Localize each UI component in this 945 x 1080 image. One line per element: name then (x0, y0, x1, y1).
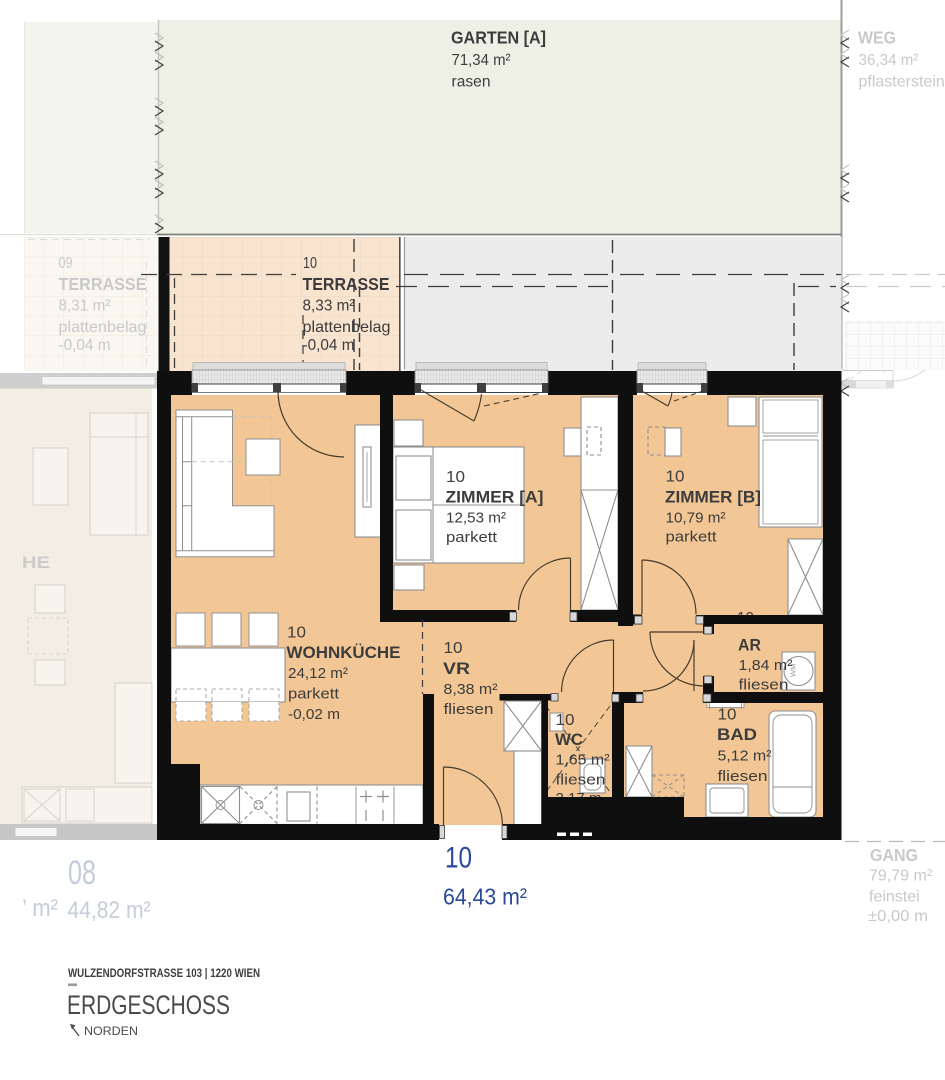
svg-text:-0,02 m: -0,02 m (288, 706, 340, 723)
svg-text:±0,00 m: ±0,00 m (868, 908, 928, 925)
svg-text:10: 10 (303, 255, 317, 272)
svg-text:HE: HE (22, 553, 50, 572)
svg-text:10: 10 (718, 707, 737, 724)
svg-text:12,53 m²: 12,53 m² (446, 509, 506, 526)
svg-text:09: 09 (59, 255, 73, 272)
svg-text:TERRASSE: TERRASSE (303, 274, 390, 294)
svg-text:10: 10 (287, 625, 306, 642)
svg-text:08: 08 (68, 854, 96, 892)
svg-text:-0,04 m: -0,04 m (59, 337, 111, 354)
svg-text:fliesen: fliesen (718, 768, 768, 785)
svg-text:GANG: GANG (870, 845, 918, 865)
svg-text:10: 10 (556, 712, 575, 729)
svg-text:NORDEN: NORDEN (84, 1024, 138, 1038)
svg-text:’ m²: ’ m² (22, 895, 58, 922)
svg-text:44,82 m²: 44,82 m² (68, 897, 151, 924)
svg-text:plattenbelag: plattenbelag (59, 319, 147, 336)
svg-text:10: 10 (444, 640, 463, 657)
svg-text:GARTEN [A]: GARTEN [A] (451, 28, 546, 48)
svg-text:fliesen: fliesen (739, 677, 789, 694)
svg-text:8,31 m²: 8,31 m² (59, 298, 112, 315)
svg-text:fliesen: fliesen (444, 701, 494, 718)
svg-text:24,12 m²: 24,12 m² (288, 665, 348, 682)
svg-text:79,79 m²: 79,79 m² (869, 868, 933, 885)
svg-text:8,33 m²: 8,33 m² (303, 298, 356, 315)
svg-text:1,84 m²: 1,84 m² (739, 657, 793, 674)
svg-text:5,12 m²: 5,12 m² (718, 748, 772, 765)
svg-text:1,65 m²: 1,65 m² (556, 752, 610, 769)
svg-text:parkett: parkett (666, 529, 718, 546)
svg-text:ERDGESCHOSS: ERDGESCHOSS (67, 990, 230, 1020)
svg-text:BAD: BAD (717, 725, 757, 744)
svg-text:WC: WC (555, 730, 583, 749)
svg-text:10: 10 (446, 469, 465, 486)
svg-text:plattenbelag: plattenbelag (303, 319, 391, 336)
svg-text:36,34 m²: 36,34 m² (859, 52, 920, 69)
svg-text:VR: VR (443, 659, 470, 678)
svg-text:rasen: rasen (452, 74, 491, 91)
svg-text:10: 10 (445, 842, 472, 875)
svg-text:parkett: parkett (288, 686, 340, 703)
svg-text:64,43 m²: 64,43 m² (443, 884, 527, 910)
svg-text:71,34 m²: 71,34 m² (452, 52, 512, 69)
svg-text:parkett: parkett (446, 529, 498, 546)
svg-text:fliesen: fliesen (556, 771, 606, 788)
svg-text:TERRASSE: TERRASSE (59, 274, 147, 294)
svg-text:ZIMMER [B]: ZIMMER [B] (665, 487, 761, 506)
svg-text:WULZENDORFSTRASSE 103 | 1220 W: WULZENDORFSTRASSE 103 | 1220 WIEN (68, 966, 260, 980)
svg-text:10,79 m²: 10,79 m² (666, 509, 726, 526)
svg-text:-0,04 m: -0,04 m (303, 337, 355, 354)
svg-text:ZIMMER [A]: ZIMMER [A] (446, 487, 544, 506)
svg-text:pflastersteine: pflastersteine (859, 74, 945, 91)
svg-text:10: 10 (666, 469, 685, 486)
svg-text:WEG: WEG (858, 28, 896, 48)
svg-text:AR: AR (738, 636, 761, 655)
svg-text:feinstei: feinstei (869, 889, 920, 906)
svg-text:WOHNKÜCHE: WOHNKÜCHE (287, 643, 401, 662)
svg-text:8,38 m²: 8,38 m² (444, 681, 498, 698)
